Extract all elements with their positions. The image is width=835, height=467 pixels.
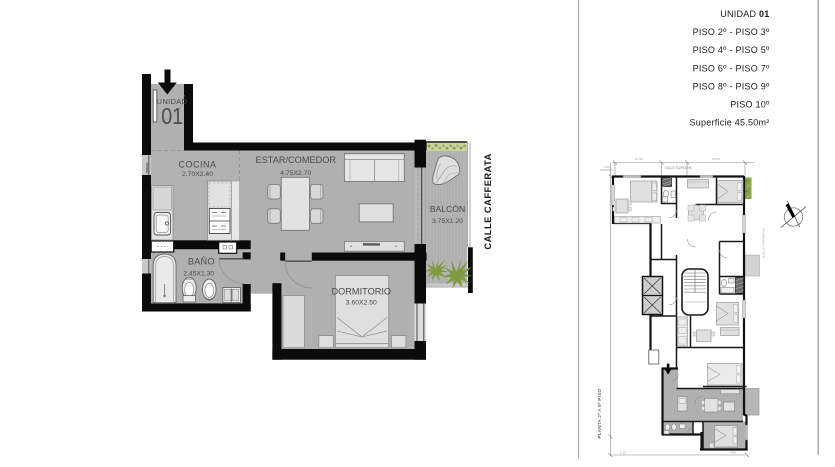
svg-text:(CALLE CAFFERATA): (CALLE CAFFERATA)	[762, 228, 766, 258]
svg-text:PISO 8º - PISO 9º: PISO 8º - PISO 9º	[693, 81, 770, 91]
svg-text:PLANTA 2º A 9º PISO: PLANTA 2º A 9º PISO	[597, 388, 603, 438]
svg-text:BAÑO: BAÑO	[188, 256, 215, 266]
svg-text:2.45X1.30: 2.45X1.30	[183, 271, 214, 278]
svg-text:UNIDAD 01: UNIDAD 01	[720, 9, 769, 19]
svg-text:4.10: 4.10	[604, 165, 610, 169]
svg-text:PISO 2º - PISO 3º: PISO 2º - PISO 3º	[693, 27, 770, 37]
svg-text:CALLE SUIPACHA: CALLE SUIPACHA	[664, 166, 692, 170]
svg-text:PISO 4º - PISO 5º: PISO 4º - PISO 5º	[693, 45, 770, 55]
svg-text:BALCÓN: BALCÓN	[430, 204, 465, 214]
svg-text:3.75X1.20: 3.75X1.20	[432, 218, 463, 225]
svg-text:CALLE CAFFERATA: CALLE CAFFERATA	[483, 153, 493, 250]
svg-text:12.50: 12.50	[712, 157, 720, 161]
svg-text:DORMITORIO: DORMITORIO	[332, 286, 392, 296]
svg-text:2.70X2.40: 2.70X2.40	[182, 171, 213, 178]
svg-text:01: 01	[161, 103, 183, 129]
svg-text:PISO 10º: PISO 10º	[730, 100, 770, 110]
svg-text:2.10: 2.10	[620, 451, 626, 455]
svg-text:4.75X2.70: 4.75X2.70	[280, 170, 311, 177]
svg-text:Superficie 45.50m²: Superficie 45.50m²	[689, 118, 769, 128]
svg-text:ESTAR/COMEDOR: ESTAR/COMEDOR	[256, 155, 337, 165]
svg-text:3.60X2.50: 3.60X2.50	[346, 299, 377, 306]
svg-text:10.30: 10.30	[635, 157, 643, 161]
svg-text:COCINA: COCINA	[178, 159, 216, 169]
svg-text:4.95: 4.95	[730, 451, 736, 455]
svg-text:PISO 6º - PISO 7º: PISO 6º - PISO 7º	[693, 63, 770, 73]
